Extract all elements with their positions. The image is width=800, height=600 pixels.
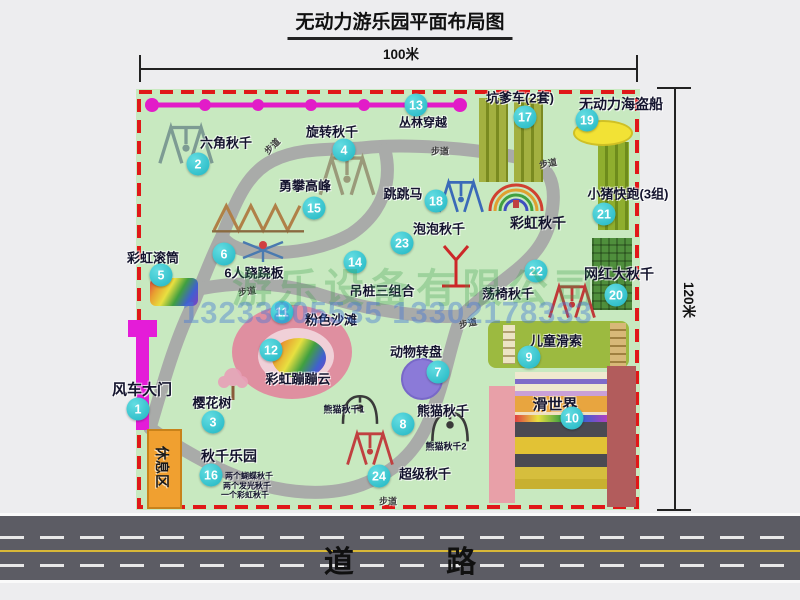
attraction-badge: 1 <box>127 398 150 421</box>
road-label: 道 路 <box>0 537 800 581</box>
road-band: 道 路 <box>0 513 800 583</box>
map-text-label: 步道 <box>431 145 449 158</box>
attraction-label: 儿童滑索 <box>530 331 582 350</box>
attraction-badge: 19 <box>576 109 599 132</box>
map-text-label: 休息区 <box>152 446 172 488</box>
attraction-label: 彩虹滚筒 <box>127 248 179 267</box>
zipline-ladder-left <box>503 325 515 364</box>
road-edge-bottom <box>0 580 800 583</box>
climb-peak-icon <box>212 196 304 236</box>
attraction-badge: 18 <box>425 190 448 213</box>
attraction-badge: 11 <box>271 301 294 324</box>
attraction-badge: 13 <box>405 94 428 117</box>
attraction-badge: 21 <box>593 203 616 226</box>
slide-stripe <box>515 372 607 379</box>
map-text-label: 步道 <box>237 283 257 298</box>
attraction-badge: 9 <box>518 346 541 369</box>
attraction-label: 粉色沙滩 <box>305 310 357 329</box>
map-text-label: 步道 <box>379 495 397 508</box>
attraction-badge: 20 <box>605 284 628 307</box>
attraction-badge: 4 <box>333 139 356 162</box>
attraction-label: 坑爹车(2套) <box>486 88 554 107</box>
map-content-layer: 彩虹秋千休息区步道步道步道步道步道步道熊猫秋千1熊猫秋千2两个蝴蝶秋千两个发光秋… <box>0 0 800 600</box>
attraction-label: 六角秋千 <box>200 133 252 152</box>
attraction-badge: 12 <box>260 339 283 362</box>
kengdie-car-strip-1 <box>479 98 508 182</box>
attraction-label: 彩虹蹦蹦云 <box>265 369 330 388</box>
map-text-label: 步道 <box>538 155 558 171</box>
attraction-badge: 22 <box>525 260 548 283</box>
slide-stripe <box>515 422 607 437</box>
attraction-label: 风车大门 <box>112 379 172 400</box>
attraction-badge: 7 <box>427 361 450 384</box>
bubble-swing-icon <box>436 242 476 290</box>
attraction-label: 樱花树 <box>192 393 231 412</box>
slide-stripe <box>515 454 607 467</box>
attraction-label: 网红大秋千 <box>584 264 654 284</box>
attraction-label: 荡椅秋千 <box>482 284 534 303</box>
slide-stripe <box>515 467 607 479</box>
attraction-badge: 14 <box>344 251 367 274</box>
attraction-badge: 10 <box>561 407 584 430</box>
attraction-badge: 6 <box>213 243 236 266</box>
map-text-label: 步道 <box>261 135 283 157</box>
chair-swing-icon <box>546 280 598 322</box>
attraction-label: 勇攀高峰 <box>279 176 331 195</box>
road-surface: 道 路 <box>0 516 800 580</box>
attraction-label: 6人跷跷板 <box>224 263 283 282</box>
attraction-label: 超级秋千 <box>399 464 451 483</box>
attraction-label: 跳跳马 <box>383 184 422 203</box>
attraction-label: 旋转秋千 <box>306 122 358 141</box>
attraction-label: 熊猫秋千 <box>417 401 469 420</box>
attraction-badge: 2 <box>187 153 210 176</box>
park-layout-page: 无动力游乐园平面布局图 100米 120米 彩虹秋千休息区步道步道步道步道 <box>0 0 800 600</box>
zipline-ladder-right <box>610 323 626 367</box>
attraction-badge: 8 <box>392 413 415 436</box>
attraction-label: 泡泡秋千 <box>413 219 465 238</box>
attraction-label: 小猪快跑(3组) <box>588 184 669 203</box>
attraction-label: 吊桩三组合 <box>349 281 414 300</box>
slide-world-stripes <box>515 372 607 502</box>
attraction-badge: 5 <box>150 264 173 287</box>
slide-stripe <box>515 384 607 391</box>
slide-stripe <box>515 479 607 489</box>
attraction-badge: 17 <box>514 106 537 129</box>
super-swing-icon <box>344 426 396 470</box>
map-text-label: 彩虹秋千 <box>510 213 566 233</box>
seesaw-icon <box>240 236 286 264</box>
attraction-badge: 24 <box>368 465 391 488</box>
attraction-badge: 3 <box>202 411 225 434</box>
slide-world-right-bar <box>607 366 636 507</box>
map-text-label: 步道 <box>458 315 478 331</box>
map-text-label: 熊猫秋千2 <box>425 440 466 453</box>
attraction-badge: 15 <box>303 197 326 220</box>
attraction-label: 动物转盘 <box>390 342 442 361</box>
attraction-badge: 23 <box>391 232 414 255</box>
map-text-label: 熊猫秋千1 <box>323 403 364 416</box>
attraction-label: 丛林穿越 <box>399 114 447 131</box>
slide-world-left-bar <box>489 386 515 503</box>
attraction-badge: 16 <box>200 464 223 487</box>
map-text-label: 一个彩虹秋千 <box>221 490 269 501</box>
slide-stripe <box>515 437 607 454</box>
